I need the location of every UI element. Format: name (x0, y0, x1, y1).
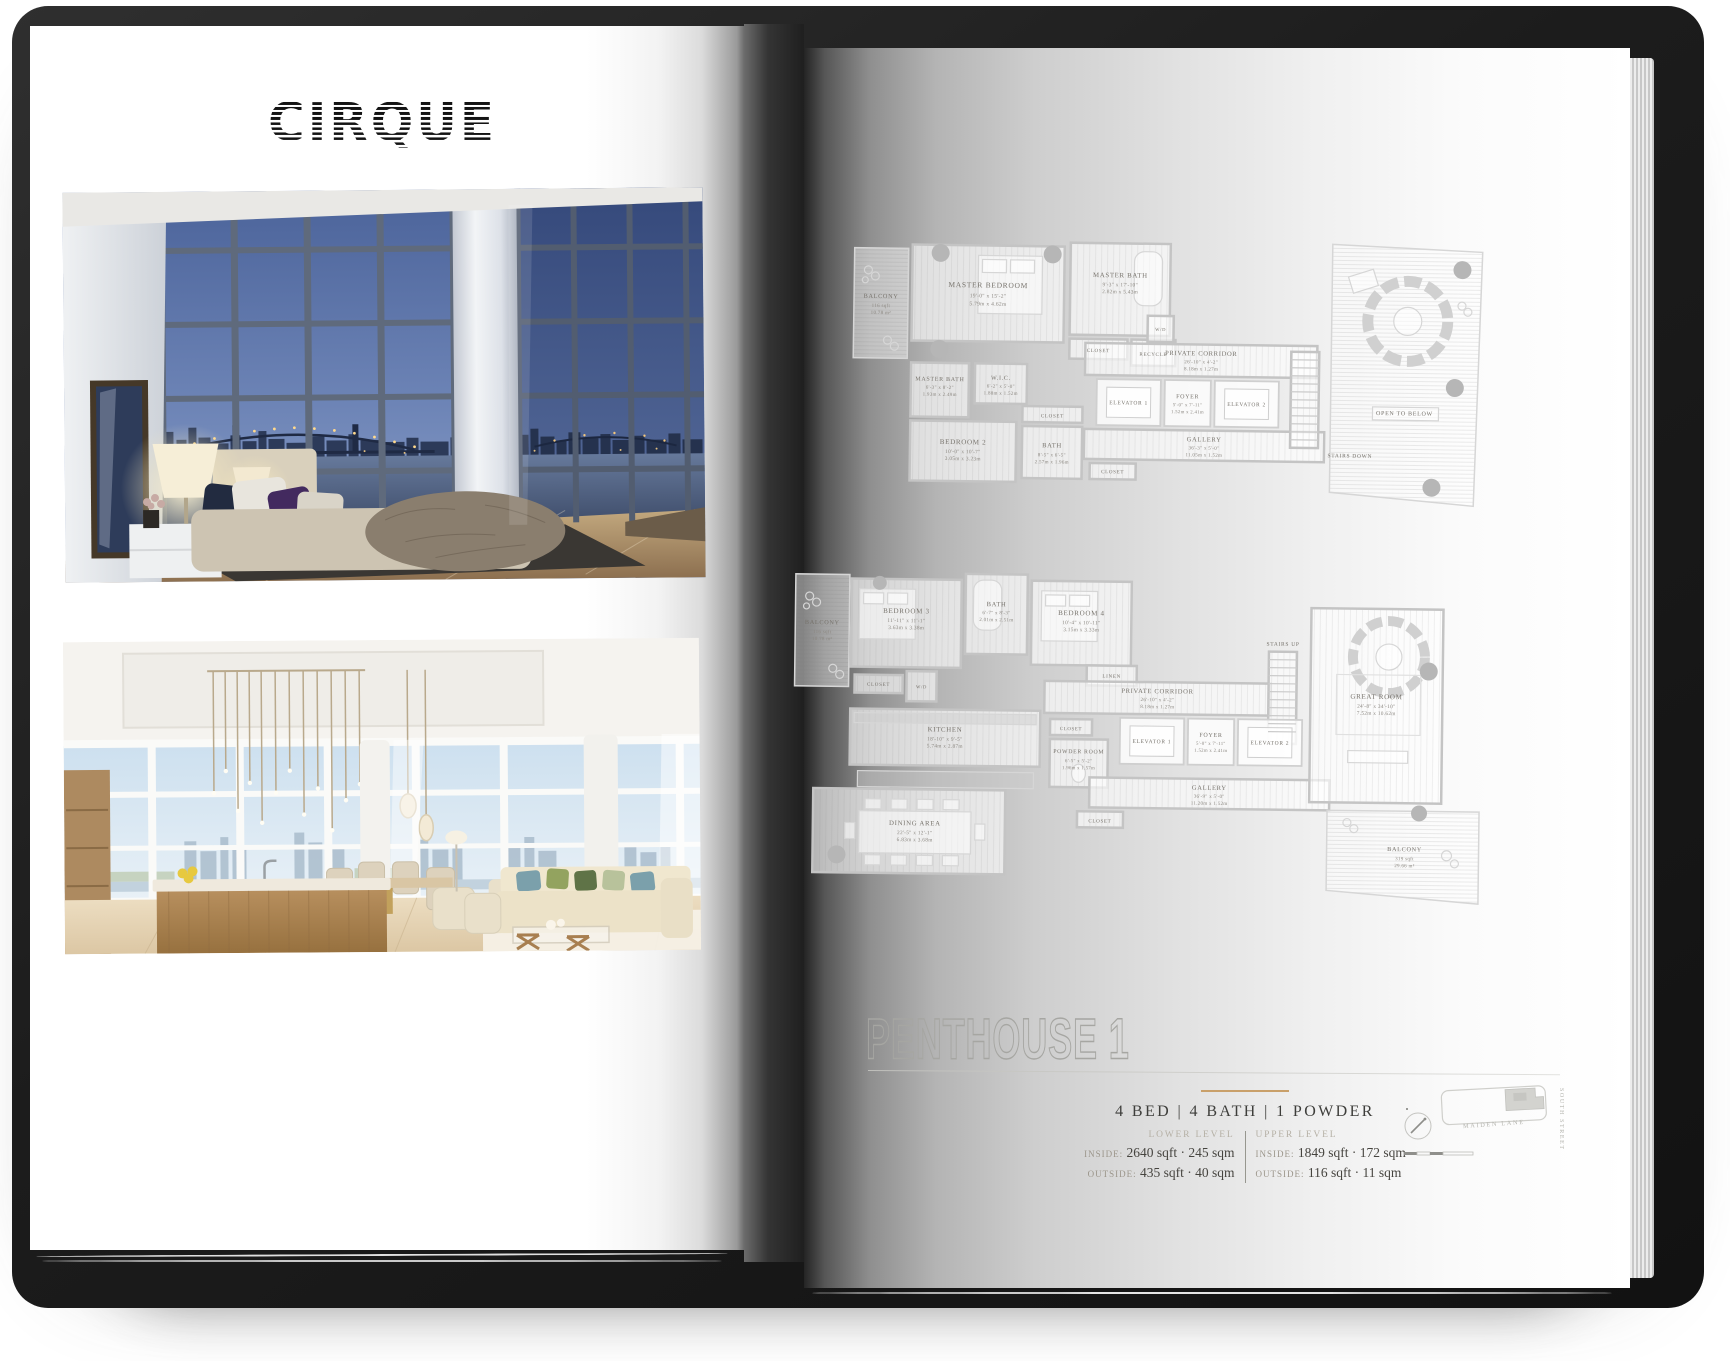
page-edge-stack (1630, 58, 1654, 1278)
svg-text:6.83m x 3.68m: 6.83m x 3.68m (897, 837, 934, 843)
svg-text:11.20m x 1.52m: 11.20m x 1.52m (1191, 802, 1228, 807)
scale-bar (1404, 1152, 1473, 1155)
room-label: BEDROOM 4 (1058, 609, 1105, 618)
page-curl-edge (42, 1260, 722, 1262)
svg-text:2.01m x 2.51m: 2.01m x 2.51m (979, 618, 1013, 623)
room-label: GREAT ROOM (1350, 693, 1402, 702)
svg-text:24'-8" x 34'-10": 24'-8" x 34'-10" (1357, 704, 1395, 710)
svg-text:5'-0" x 7'-11": 5'-0" x 7'-11" (1196, 742, 1226, 747)
svg-text:6'-7" x 8'-3": 6'-7" x 8'-3" (982, 611, 1010, 616)
page-curl-edge (812, 1292, 1612, 1294)
svg-text:5.79m x 4.62m: 5.79m x 4.62m (969, 301, 1007, 308)
room-label: BALCONY (805, 619, 840, 626)
room-label: LINEN (1102, 675, 1121, 680)
room-label: POWDER ROOM (1053, 749, 1104, 756)
svg-text:26'-10" x 4'-2": 26'-10" x 4'-2" (1184, 360, 1218, 365)
outside-label: OUTSIDE: (1088, 1169, 1137, 1179)
svg-text:8.18m x 1.27m: 8.18m x 1.27m (1140, 705, 1174, 710)
room-label: RECYCLE (1139, 353, 1167, 358)
ceiling-panel (123, 651, 544, 728)
svg-text:1.96m x 1.57m: 1.96m x 1.57m (1062, 766, 1095, 771)
svg-text:8'-5" x 6'-5": 8'-5" x 6'-5" (1038, 453, 1066, 458)
svg-text:18'-10" x 9'-5": 18'-10" x 9'-5" (927, 736, 963, 742)
room-label: STAIRS UP (1266, 642, 1299, 648)
room-label: OPEN TO BELOW (1376, 411, 1433, 418)
svg-text:3.63m x 3.38m: 3.63m x 3.38m (888, 625, 925, 631)
svg-text:36'-9" x 5'-0": 36'-9" x 5'-0" (1194, 795, 1225, 800)
room-label: MASTER BEDROOM (948, 280, 1028, 290)
unit-specs: 4 BED | 4 BATH | 1 POWDER LOWER LEVEL IN… (1075, 1090, 1415, 1184)
site-location-map: MAIDEN LANE SOUTH STREET (1388, 1078, 1573, 1178)
svg-text:10.78 m²: 10.78 m² (871, 310, 892, 316)
room-label: ELEVATOR 1 (1132, 739, 1171, 745)
room-label: BEDROOM 2 (940, 438, 987, 447)
street-label-maiden-lane: MAIDEN LANE (1463, 1119, 1525, 1130)
room-label: CLOSET (1101, 470, 1124, 475)
svg-text:19'-0" x 15'-2": 19'-0" x 15'-2" (970, 293, 1007, 300)
inside-value: 2640 sqft · 245 sqm (1127, 1145, 1235, 1160)
svg-text:6'-3" x 8'-2": 6'-3" x 8'-2" (926, 386, 954, 391)
svg-text:10.78 m²: 10.78 m² (812, 636, 833, 642)
gold-accent-rule (1201, 1090, 1289, 1092)
room-label: STAIRS DOWN (1327, 453, 1372, 460)
svg-text:2.57m x 1.96m: 2.57m x 1.96m (1035, 460, 1069, 465)
room-label: BALCONY (864, 293, 899, 300)
svg-text:36'-3" x 5'-0": 36'-3" x 5'-0" (1188, 446, 1219, 451)
svg-text:2.82m x 5.43m: 2.82m x 5.43m (1102, 289, 1139, 296)
room-label: PRIVATE CORRIDOR (1165, 350, 1237, 358)
room-label: ELEVATOR 1 (1109, 400, 1148, 407)
room-label: FOYER (1199, 733, 1222, 739)
svg-text:6'-2" x 5'-0": 6'-2" x 5'-0" (987, 385, 1015, 390)
room-label: GALLERY (1187, 436, 1222, 443)
room-label: W/D (916, 684, 927, 689)
room-label: MASTER BATH (915, 377, 964, 384)
floor-plan-lower-level: BALCONY 116 sqft 10.78 m² BEDROOM 3 11'-… (786, 548, 1490, 917)
svg-text:10'-0" x 10'-7": 10'-0" x 10'-7" (945, 449, 981, 455)
svg-text:9'-3" x 17'-10": 9'-3" x 17'-10" (1102, 282, 1138, 288)
svg-text:11'-11" x 11'-1": 11'-11" x 11'-1" (887, 618, 925, 624)
balcony-upper (853, 248, 909, 359)
svg-text:6'-5" x 5'-2": 6'-5" x 5'-2" (1065, 759, 1092, 764)
page-title: PENTHOUSE 1 (866, 1008, 1130, 1073)
room-label: BATH (987, 601, 1007, 608)
photo-master-bedroom (62, 187, 705, 583)
room-label: BEDROOM 3 (883, 607, 930, 616)
room-label: KITCHEN (928, 726, 963, 733)
room-label: CLOSET (1088, 819, 1111, 824)
svg-text:10'-4" x 10'-11": 10'-4" x 10'-11" (1062, 620, 1100, 626)
room-label: CLOSET (867, 683, 890, 688)
compass-icon (1405, 1108, 1431, 1139)
room-label: CLOSET (1087, 349, 1110, 354)
inside-label: INSIDE: (1084, 1149, 1123, 1159)
photo-great-room (63, 638, 701, 954)
outside-label: OUTSIDE: (1255, 1169, 1304, 1179)
svg-text:5'-0" x 7'-11": 5'-0" x 7'-11" (1173, 403, 1203, 408)
svg-text:3.15m x 3.33m: 3.15m x 3.33m (1063, 627, 1100, 633)
room-label: W.I.C. (991, 376, 1011, 382)
cirque-logo: CIRQUE (268, 92, 497, 153)
inside-label: INSIDE: (1255, 1149, 1294, 1159)
room-label: PRIVATE CORRIDOR (1121, 688, 1193, 696)
svg-text:1.52m x 2.41m: 1.52m x 2.41m (1194, 749, 1227, 754)
svg-text:1.52m x 2.41m: 1.52m x 2.41m (1171, 410, 1204, 415)
room-label: ELEVATOR 2 (1227, 402, 1266, 409)
svg-text:1.88m x 1.52m: 1.88m x 1.52m (984, 391, 1018, 396)
armchairs (433, 887, 501, 933)
svg-text:11.05m x 1.52m: 11.05m x 1.52m (1185, 453, 1222, 459)
svg-text:116 sqft: 116 sqft (872, 304, 891, 309)
room-label: W/D (1155, 327, 1166, 332)
street-label-south-street: SOUTH STREET (1558, 1088, 1564, 1151)
room-label: BALCONY (1387, 846, 1422, 853)
city-block (1441, 1086, 1547, 1125)
svg-text:3.05m x 3.23m: 3.05m x 3.23m (945, 456, 982, 463)
bed-bath-headline: 4 BED | 4 BATH | 1 POWDER (1075, 1103, 1415, 1121)
room-label: CLOSET (1041, 414, 1064, 419)
floor-plan-upper-level: BALCONY 116 sqft 10.78 m² MASTER BEDROOM… (843, 228, 1487, 522)
svg-text:26'-10" x 4'-2": 26'-10" x 4'-2" (1140, 698, 1174, 703)
room-label: GALLERY (1192, 785, 1227, 792)
room-label: MASTER BATH (1093, 272, 1148, 280)
svg-text:116 sqft: 116 sqft (813, 630, 832, 635)
svg-text:5.74m x 2.87m: 5.74m x 2.87m (927, 743, 964, 749)
svg-text:22'-5" x 12'-1": 22'-5" x 12'-1" (897, 830, 933, 836)
room-label: CLOSET (1060, 727, 1082, 732)
level-spec-table: LOWER LEVEL INSIDE: 2640 sqft · 245 sqm … (1075, 1130, 1415, 1184)
svg-text:7.52m x 10.62m: 7.52m x 10.62m (1357, 711, 1397, 717)
svg-text:29.66 m²: 29.66 m² (1394, 863, 1415, 869)
room-label: FOYER (1176, 394, 1199, 400)
room-label: DINING AREA (889, 820, 941, 828)
brochure-spread: CIRQUE (0, 0, 1730, 1361)
outside-value: 435 sqft · 40 sqm (1140, 1165, 1235, 1180)
svg-text:8.18m x 1.27m: 8.18m x 1.27m (1184, 367, 1218, 372)
room-label: ELEVATOR 2 (1250, 740, 1289, 746)
svg-text:319 sqft: 319 sqft (1395, 857, 1414, 862)
room-label: BATH (1042, 442, 1062, 449)
svg-text:1.93m x 2.49m: 1.93m x 2.49m (923, 393, 957, 398)
level-label: LOWER LEVEL (1075, 1130, 1235, 1140)
lower-level-column: LOWER LEVEL INSIDE: 2640 sqft · 245 sqm … (1075, 1130, 1245, 1184)
